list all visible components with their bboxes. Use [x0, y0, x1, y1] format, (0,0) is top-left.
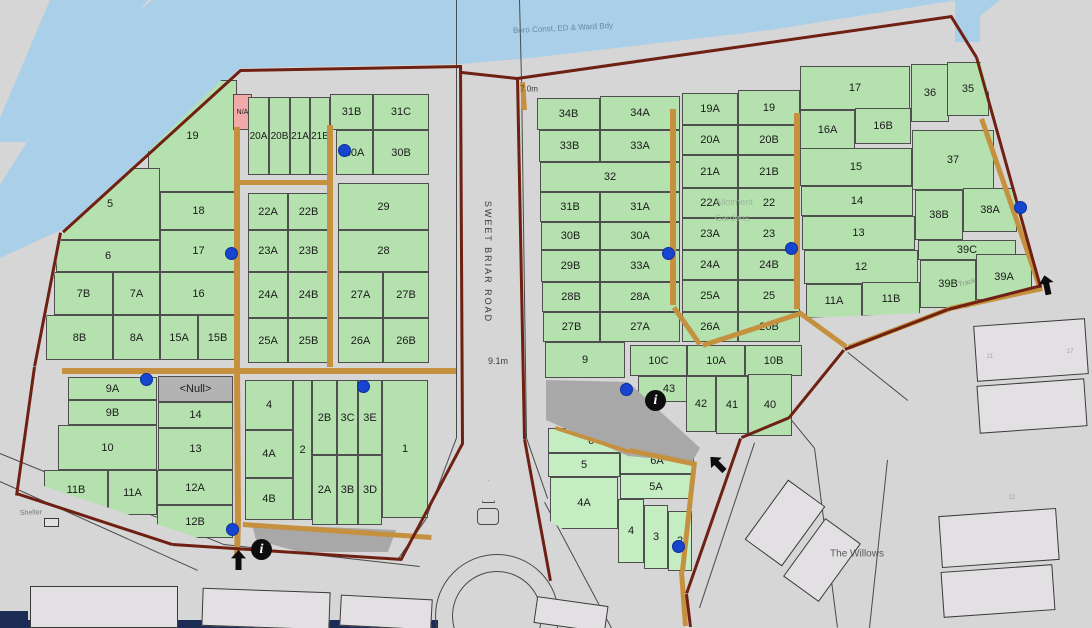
plot-4a[interactable]: 4A [245, 430, 293, 478]
plot-10[interactable]: 10 [58, 425, 157, 470]
building [976, 378, 1087, 433]
map-text-allotment: Allotment [715, 197, 753, 207]
info-icon[interactable]: i [251, 539, 272, 560]
plot-15b[interactable]: 15B [198, 315, 237, 360]
plot-36[interactable]: 36 [911, 64, 949, 122]
plot-23a[interactable]: 23A [248, 230, 288, 272]
building [339, 595, 432, 628]
plot-15a[interactable]: 15A [160, 315, 198, 360]
plot-25b[interactable]: 25B [288, 318, 329, 363]
waterway-strip [0, 611, 28, 628]
building [941, 564, 1056, 618]
map-marker-dot[interactable] [225, 247, 238, 260]
plot-12b[interactable]: 12B [157, 505, 233, 538]
plot-27b[interactable]: 27B [383, 272, 429, 318]
footpath [234, 367, 241, 521]
plot-6[interactable]: 6 [56, 240, 160, 272]
map-text-gardens: Gardens [715, 213, 750, 223]
plot-16a[interactable]: 16A [800, 110, 855, 150]
plot-35[interactable]: 35 [947, 62, 989, 116]
plot-3b[interactable]: 3B [337, 455, 358, 525]
plot-4a[interactable]: 4A [550, 477, 618, 529]
plot-30a[interactable]: 30A [600, 222, 680, 250]
footpath [670, 109, 676, 305]
map-marker-dot[interactable] [672, 540, 685, 553]
plot-13[interactable]: 13 [158, 428, 233, 470]
map-marker-dot[interactable] [785, 242, 798, 255]
map-marker-dot[interactable] [662, 247, 675, 260]
plot-19a[interactable]: 19A [682, 93, 738, 125]
plot-38b[interactable]: 38B [915, 190, 963, 240]
plot-10c[interactable]: 10C [630, 345, 687, 376]
map-marker-dot[interactable] [1014, 201, 1027, 214]
plot-22a[interactable]: 22A [248, 193, 288, 230]
plot-19[interactable]: 19 [738, 90, 800, 125]
plot-20b[interactable]: 20B [269, 97, 290, 175]
map-marker-dot[interactable] [226, 523, 239, 536]
plot-17[interactable]: 17 [800, 66, 910, 110]
plot-24a[interactable]: 24A [248, 272, 288, 318]
plot-21b[interactable]: 21B [738, 155, 800, 188]
map-text-the-willows: The Willows [830, 549, 884, 560]
traffic-island [477, 508, 499, 525]
plot-5[interactable]: 5 [548, 453, 620, 477]
road-edge-line [869, 459, 888, 627]
plot-26a[interactable]: 26A [338, 318, 383, 363]
plot-4[interactable]: 4 [245, 380, 293, 430]
plot-22b[interactable]: 22B [288, 193, 329, 230]
plot-8a[interactable]: 8A [113, 315, 160, 360]
plot-27a[interactable]: 27A [338, 272, 383, 318]
plot-10a[interactable]: 10A [687, 345, 745, 376]
plot-29[interactable]: 29 [338, 183, 429, 230]
plot-33b[interactable]: 33B [539, 130, 600, 162]
plot-4[interactable]: 4 [618, 499, 644, 563]
plot-23b[interactable]: 23B [288, 230, 329, 272]
boundary-line [462, 71, 517, 80]
plot-37[interactable]: 37 [912, 130, 994, 190]
road-edge-line [847, 352, 908, 401]
plot-18[interactable]: 18 [160, 192, 237, 230]
map-text-9-1m: 9.1m [488, 356, 508, 366]
plot-33a[interactable]: 33A [600, 130, 680, 162]
footpath [62, 368, 456, 374]
plot-11b[interactable]: 11B [862, 282, 920, 316]
map-text-shelter: Shelter [20, 509, 42, 517]
building [201, 588, 330, 628]
road-edge-line [699, 442, 755, 607]
plot-28[interactable]: 28 [338, 230, 429, 272]
plot-null[interactable]: <Null> [158, 376, 233, 402]
plot-16[interactable]: 16 [160, 272, 237, 315]
map-canvas[interactable]: SWEET BRIAR ROAD 19518176167B7A8B8A15A15… [0, 0, 1092, 628]
plot-20a[interactable]: 20A [248, 97, 269, 175]
plot-2a[interactable]: 2A [312, 455, 337, 525]
map-marker-dot[interactable] [620, 383, 633, 396]
plot-25a[interactable]: 25A [682, 280, 738, 312]
road-edge-line [791, 420, 815, 449]
plot-41[interactable]: 41 [716, 376, 748, 434]
map-text-21: 21 [987, 354, 994, 360]
plot-9[interactable]: 9 [545, 342, 625, 378]
plot-13[interactable]: 13 [802, 216, 915, 250]
plot-25a[interactable]: 25A [248, 318, 288, 363]
building [44, 518, 59, 527]
plot-31a[interactable]: 31A [600, 192, 680, 222]
plot-29b[interactable]: 29B [541, 250, 600, 282]
plot-9b[interactable]: 9B [68, 400, 157, 425]
map-text-7-0m: 7.0m [520, 85, 538, 94]
plot-7b[interactable]: 7B [54, 272, 113, 315]
boundary-line [15, 366, 36, 495]
plot-27b[interactable]: 27B [543, 312, 600, 342]
plot-20b[interactable]: 20B [738, 125, 800, 155]
plot-2[interactable]: 2 [293, 380, 312, 520]
plot-5a[interactable]: 5A [620, 474, 692, 499]
plot-8b[interactable]: 8B [46, 315, 113, 360]
plot-31b[interactable]: 31B [330, 94, 373, 130]
building [938, 508, 1059, 568]
plot-30b[interactable]: 30B [541, 222, 600, 250]
plot-3c[interactable]: 3C [337, 380, 358, 455]
plot-20a[interactable]: 20A [682, 125, 738, 155]
plot-28a[interactable]: 28A [600, 282, 680, 312]
footpath [794, 113, 800, 309]
plot-3d[interactable]: 3D [358, 455, 382, 525]
map-marker-dot[interactable] [338, 144, 351, 157]
plot-12a[interactable]: 12A [157, 470, 233, 505]
plot-14[interactable]: 14 [801, 186, 913, 216]
plot-24a[interactable]: 24A [682, 250, 738, 280]
plot-3[interactable]: 3 [644, 505, 668, 569]
road-name-label: SWEET BRIAR ROAD [483, 201, 493, 323]
plot-11a[interactable]: 11A [108, 470, 157, 515]
info-icon[interactable]: i [645, 390, 666, 411]
plot-28b[interactable]: 28B [542, 282, 600, 312]
plot-2b[interactable]: 2B [312, 380, 337, 455]
plot-24b[interactable]: 24B [288, 272, 329, 318]
plot-26b[interactable]: 26B [383, 318, 429, 363]
plot-42[interactable]: 42 [686, 376, 716, 432]
plot-31c[interactable]: 31C [373, 94, 429, 130]
map-marker-dot[interactable] [140, 373, 153, 386]
traffic-island [482, 480, 495, 503]
plot-11a[interactable]: 11A [806, 284, 862, 318]
footpath [238, 180, 333, 185]
plot-21a[interactable]: 21A [682, 155, 738, 188]
plot-31b[interactable]: 31B [540, 192, 600, 222]
plot-25[interactable]: 25 [738, 280, 800, 312]
plot-27a[interactable]: 27A [600, 312, 680, 342]
plot-12[interactable]: 12 [804, 250, 918, 284]
plot-14[interactable]: 14 [158, 402, 233, 428]
map-text-12: 12 [1009, 495, 1016, 501]
plot-34b[interactable]: 34B [537, 98, 600, 130]
plot-34a[interactable]: 34A [600, 96, 680, 130]
plot-4b[interactable]: 4B [245, 478, 293, 520]
plot-21a[interactable]: 21A [290, 97, 310, 175]
footpath [327, 125, 333, 367]
plot-16b[interactable]: 16B [855, 108, 911, 144]
building [30, 586, 178, 628]
map-text-17: 17 [1067, 349, 1074, 355]
boundary-line [459, 65, 464, 444]
map-marker-dot[interactable] [357, 380, 370, 393]
plot-15[interactable]: 15 [800, 148, 912, 186]
plot-30b[interactable]: 30B [373, 130, 429, 175]
plot-10b[interactable]: 10B [745, 345, 802, 376]
plot-7a[interactable]: 7A [113, 272, 160, 315]
plot-1[interactable]: 1 [382, 380, 428, 518]
plot-32[interactable]: 32 [540, 162, 680, 192]
